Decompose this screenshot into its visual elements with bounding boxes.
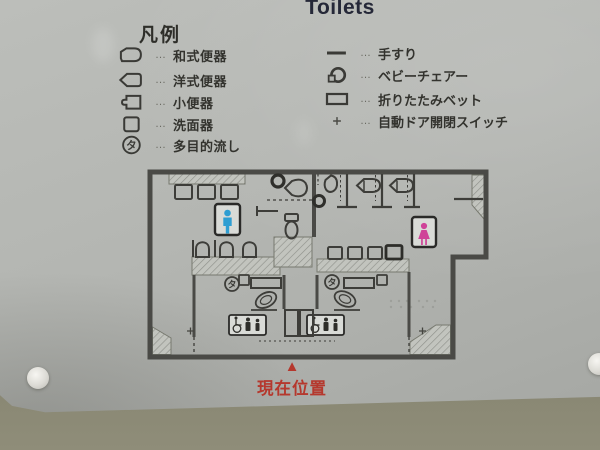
squat-toilet <box>285 180 307 197</box>
sign-photo: Toilets 凡例 … 和式便器 … 洋式便器 … 小便器 <box>0 0 600 450</box>
ramp-wall <box>472 175 484 219</box>
washbasin <box>348 247 362 259</box>
legend-heading: 凡例 <box>139 20 181 47</box>
legend-item-baby-chair: … ベビーチェアー <box>322 65 468 85</box>
baby-chair-icon <box>322 65 352 85</box>
legend-dots: … <box>155 139 167 151</box>
western-toilet-icon <box>117 70 147 90</box>
current-location-label: 現在位置 <box>232 375 352 399</box>
center-wall-block <box>274 237 312 267</box>
washbasin <box>221 185 238 199</box>
accessible-room-left: タ <box>225 275 281 335</box>
womens-room <box>314 174 484 259</box>
accessible-sign <box>229 315 266 335</box>
svg-text:タ: タ <box>126 140 137 152</box>
legend-label: 自動ドア開閉スイッチ <box>378 112 508 131</box>
urinal <box>196 242 209 257</box>
person-icon <box>246 318 250 322</box>
folding-bed <box>251 278 281 288</box>
squat-toilet-icon <box>117 45 147 65</box>
washbasin <box>328 247 342 259</box>
corner-pillar-right <box>410 325 451 355</box>
legend-dots: … <box>155 49 167 61</box>
western-toilet-tank <box>285 214 298 221</box>
mounting-bolt <box>27 367 49 389</box>
glare-reflection <box>92 28 114 62</box>
legend-item-handrail: … 手すり <box>322 43 417 63</box>
mens-washbasin-counter <box>169 174 245 184</box>
western-toilet <box>286 222 298 239</box>
mens-sign <box>215 204 240 235</box>
legend-label: 和式便器 <box>173 46 227 65</box>
urinal <box>220 242 233 257</box>
baby-chair <box>272 175 284 187</box>
legend-item-multipurpose-sink: タ … 多目的流し <box>117 135 241 155</box>
door <box>285 310 298 336</box>
legend-dots: … <box>155 96 167 108</box>
sign-title: Toilets <box>255 0 425 20</box>
legend-label: 洗面器 <box>173 115 214 134</box>
legend-item-folding-bed: … 折りたたみベット <box>322 89 482 109</box>
washbasin <box>386 246 402 260</box>
legend-label: 手すり <box>378 44 417 63</box>
western-toilet <box>253 289 279 312</box>
glare-reflection <box>296 120 312 146</box>
multipurpose-sink-char: タ <box>327 277 336 288</box>
legend-label: ベビーチェアー <box>378 66 468 85</box>
washbasin <box>239 275 249 285</box>
person-icon <box>334 319 338 323</box>
legend-dots: … <box>155 74 167 86</box>
legend-item-western-toilet: … 洋式便器 <box>117 70 227 90</box>
folding-bed <box>344 278 374 288</box>
legend-label: 多目的流し <box>173 136 241 155</box>
urinal <box>243 242 256 257</box>
handrail <box>257 206 278 216</box>
legend-dots: … <box>360 69 372 81</box>
legend-dots: … <box>360 93 372 105</box>
legend-dots: … <box>360 47 372 59</box>
current-location: ▲ 現在位置 <box>232 360 352 399</box>
washbasin <box>368 247 382 259</box>
washbasin <box>175 185 192 199</box>
legend-item-washbasin: … 洗面器 <box>117 114 214 134</box>
legend-item-urinal: … 小便器 <box>117 92 214 112</box>
mens-lower-wall <box>192 257 280 275</box>
handrail-icon <box>322 43 352 63</box>
western-toilet <box>332 288 358 310</box>
current-location-marker: ▲ <box>232 360 352 374</box>
legend-item-auto-door-switch: … 自動ドア開閉スイッチ <box>322 111 508 131</box>
person-icon <box>256 319 260 323</box>
legend-dots: … <box>360 115 372 127</box>
auto-door-switch-icon <box>322 111 352 131</box>
legend-item-squat-toilet: … 和式便器 <box>117 45 227 65</box>
urinal-icon <box>117 92 147 112</box>
multipurpose-sink-icon: タ <box>117 135 147 155</box>
corner-pillar-left <box>153 327 172 355</box>
western-toilet <box>390 179 413 192</box>
legend-dots: … <box>155 118 167 130</box>
washbasin-icon <box>117 114 147 134</box>
womens-washbasin-counter <box>317 259 409 272</box>
legend-label: 洋式便器 <box>173 71 227 90</box>
accessible-room-right: タ <box>307 275 387 335</box>
multipurpose-sink-char: タ <box>227 279 236 290</box>
legend-label: 折りたたみベット <box>378 90 482 109</box>
washbasin <box>377 275 387 285</box>
person-icon <box>324 318 328 322</box>
legend-label: 小便器 <box>173 93 214 112</box>
folding-bed-icon <box>322 89 352 109</box>
squat-toilet <box>325 176 337 192</box>
door-opening <box>194 337 409 354</box>
braille-dots <box>390 300 436 308</box>
sign-panel: Toilets 凡例 … 和式便器 … 洋式便器 … 小便器 <box>0 0 600 450</box>
washbasin <box>198 185 215 199</box>
floor-plan-map: タ <box>139 161 495 391</box>
womens-sign <box>412 217 436 247</box>
western-toilet <box>357 179 380 192</box>
